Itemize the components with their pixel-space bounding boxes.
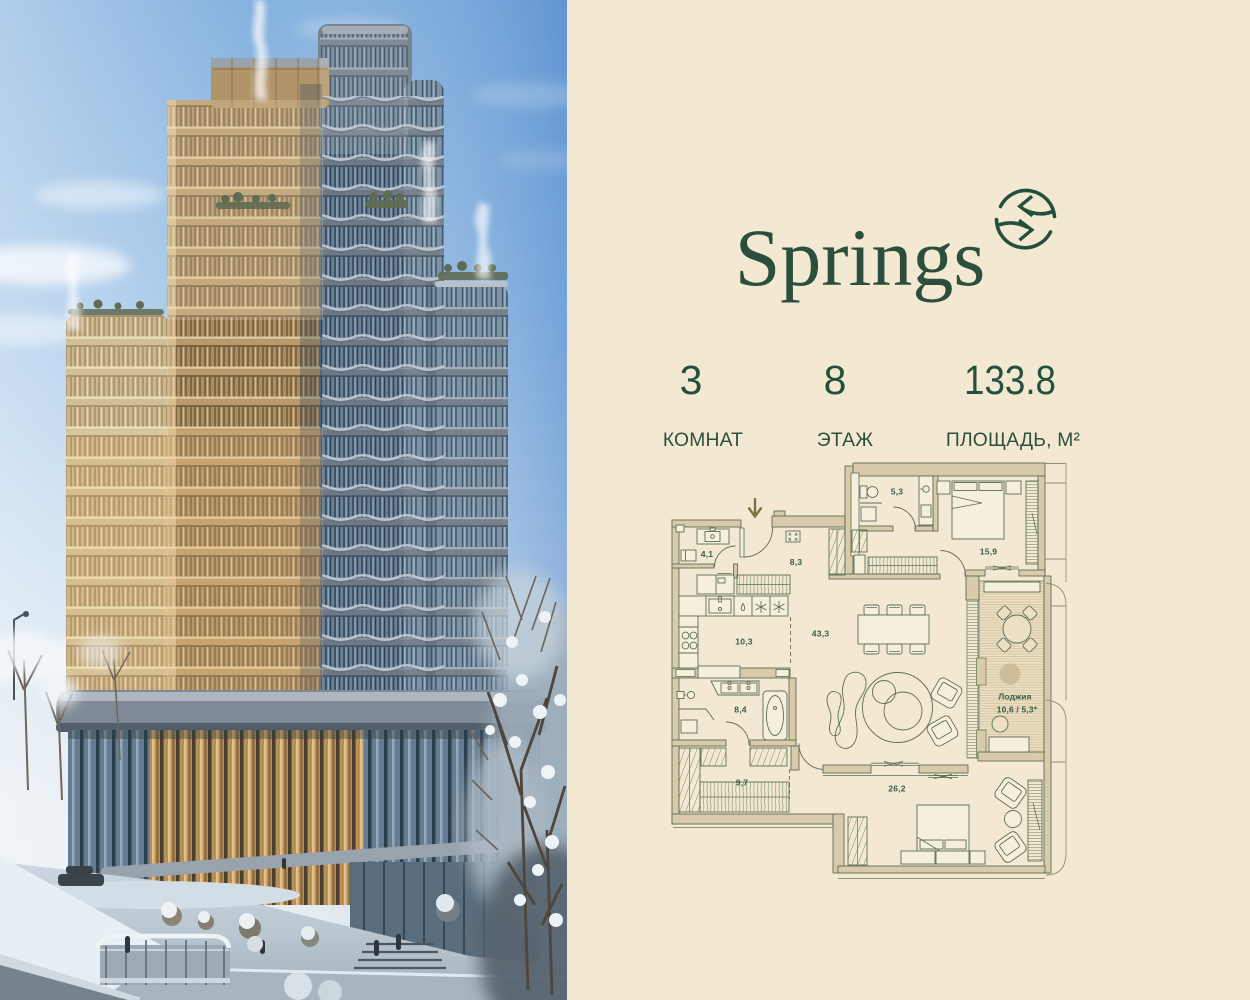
svg-text:133.8: 133.8 bbox=[964, 357, 1056, 403]
svg-text:10,3: 10,3 bbox=[735, 637, 753, 647]
svg-text:Springs: Springs bbox=[735, 212, 986, 303]
svg-text:КОМНАТ: КОМНАТ bbox=[663, 430, 743, 451]
svg-text:9,7: 9,7 bbox=[736, 778, 749, 788]
svg-text:3: 3 bbox=[680, 357, 703, 403]
svg-text:Лоджия: Лоджия bbox=[998, 692, 1031, 702]
svg-text:8: 8 bbox=[824, 357, 847, 403]
svg-text:ЭТАЖ: ЭТАЖ bbox=[817, 430, 873, 451]
svg-text:5,3: 5,3 bbox=[891, 487, 904, 497]
svg-text:ПЛОЩАДЬ, М²: ПЛОЩАДЬ, М² bbox=[946, 430, 1081, 451]
svg-text:8,4: 8,4 bbox=[734, 705, 747, 715]
svg-text:8,3: 8,3 bbox=[790, 557, 803, 567]
svg-text:10,6 / 5,3*: 10,6 / 5,3* bbox=[997, 705, 1038, 715]
svg-text:4,1: 4,1 bbox=[701, 549, 714, 559]
svg-text:15,9: 15,9 bbox=[980, 547, 998, 557]
svg-text:43,3: 43,3 bbox=[812, 629, 830, 639]
svg-text:26,2: 26,2 bbox=[888, 784, 906, 794]
